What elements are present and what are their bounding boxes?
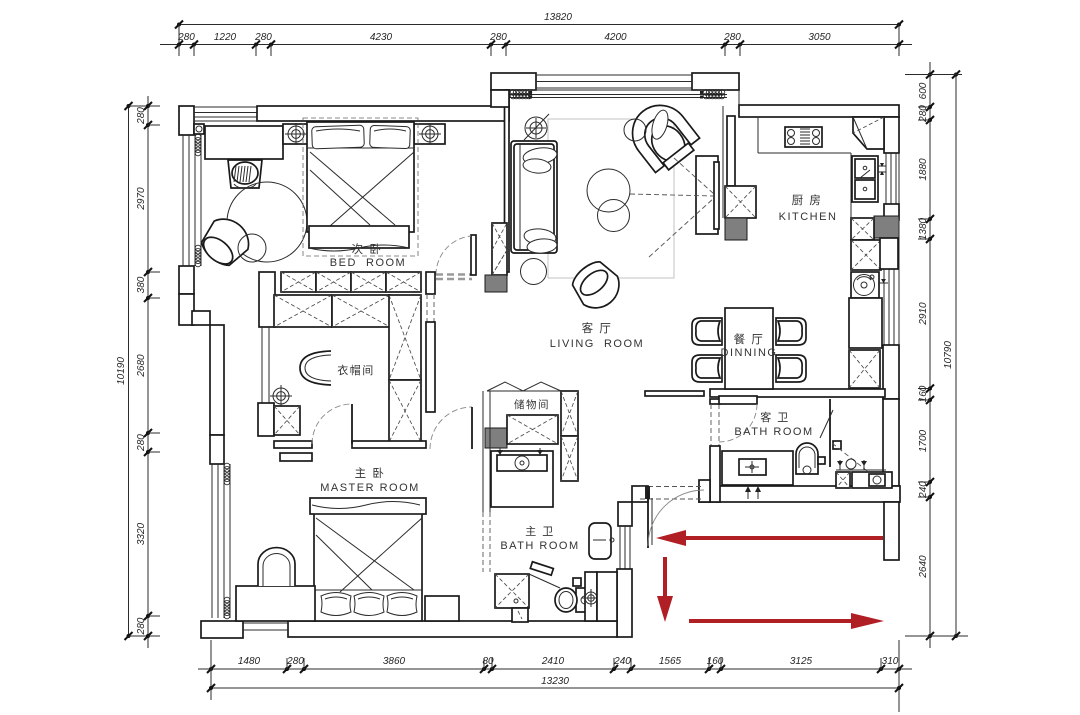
svg-text:160: 160 [918, 385, 929, 402]
svg-text:LIVING ROOM: LIVING ROOM [550, 338, 644, 350]
svg-text:3860: 3860 [383, 656, 406, 667]
svg-text:KITCHEN: KITCHEN [779, 211, 838, 223]
svg-text:240: 240 [613, 656, 631, 667]
svg-text:次 卧: 次 卧 [352, 242, 383, 256]
svg-text:BED ROOM: BED ROOM [330, 257, 406, 269]
svg-text:2680: 2680 [136, 354, 147, 378]
svg-text:280: 280 [254, 32, 272, 43]
svg-text:厨 房: 厨 房 [792, 194, 823, 207]
svg-text:13820: 13820 [544, 12, 572, 23]
svg-text:主 卧: 主 卧 [355, 467, 386, 480]
svg-text:1700: 1700 [918, 429, 929, 452]
svg-text:BATH ROOM: BATH ROOM [734, 426, 813, 438]
svg-text:4230: 4230 [370, 32, 393, 43]
svg-text:3125: 3125 [790, 656, 813, 667]
svg-text:客 厅: 客 厅 [582, 321, 613, 335]
svg-text:280: 280 [723, 32, 741, 43]
svg-text:4200: 4200 [604, 32, 627, 43]
svg-text:10790: 10790 [943, 341, 954, 369]
svg-text:80: 80 [482, 656, 494, 667]
svg-text:380: 380 [136, 276, 147, 293]
svg-text:DINNING: DINNING [721, 347, 778, 359]
svg-text:衣帽间: 衣帽间 [337, 363, 375, 377]
svg-text:310: 310 [882, 656, 899, 667]
svg-text:1480: 1480 [238, 656, 261, 667]
svg-text:1880: 1880 [918, 158, 929, 181]
svg-text:储物间: 储物间 [514, 398, 550, 411]
svg-text:13230: 13230 [541, 676, 569, 687]
svg-text:1220: 1220 [214, 32, 237, 43]
svg-text:1565: 1565 [659, 656, 682, 667]
svg-text:10190: 10190 [116, 357, 127, 385]
svg-text:3050: 3050 [808, 32, 831, 43]
svg-text:280: 280 [918, 105, 929, 123]
svg-text:客 卫: 客 卫 [760, 410, 790, 424]
svg-text:280: 280 [136, 107, 147, 125]
svg-text:3320: 3320 [136, 522, 147, 545]
svg-text:2410: 2410 [541, 656, 565, 667]
svg-text:餐 厅: 餐 厅 [734, 332, 765, 346]
svg-text:BATH ROOM: BATH ROOM [500, 540, 579, 552]
svg-text:280: 280 [136, 434, 147, 452]
svg-text:2640: 2640 [918, 555, 929, 579]
svg-text:2910: 2910 [918, 302, 929, 326]
svg-text:280: 280 [489, 32, 507, 43]
svg-text:280: 280 [286, 656, 304, 667]
svg-text:280: 280 [136, 617, 147, 635]
svg-text:主 卫: 主 卫 [525, 525, 555, 538]
svg-text:280: 280 [177, 32, 195, 43]
svg-text:1380: 1380 [918, 217, 929, 240]
svg-text:600: 600 [918, 82, 929, 99]
svg-text:160: 160 [707, 656, 724, 667]
svg-text:MASTER ROOM: MASTER ROOM [320, 482, 420, 494]
svg-text:240: 240 [918, 481, 929, 499]
svg-text:2970: 2970 [136, 187, 147, 211]
